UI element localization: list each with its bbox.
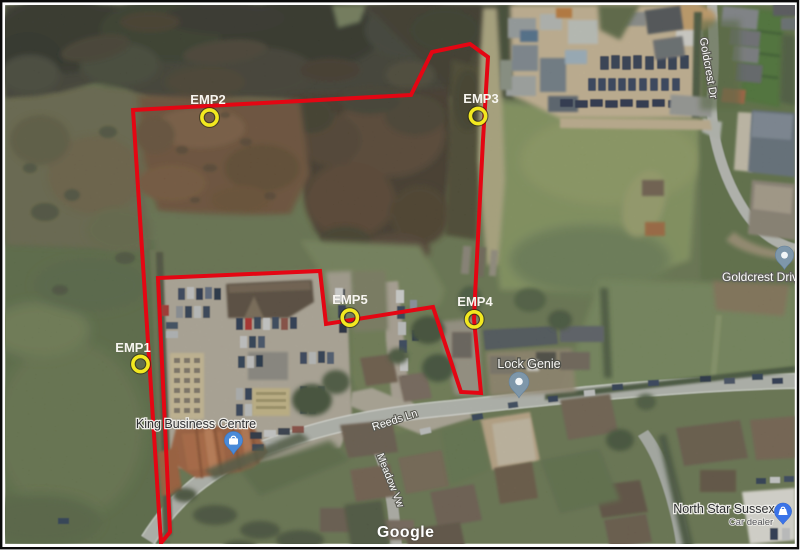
- svg-text:King Business Centre: King Business Centre: [136, 417, 256, 431]
- svg-text:Google: Google: [377, 524, 434, 541]
- svg-text:EMP5: EMP5: [332, 292, 367, 307]
- svg-text:Car dealer: Car dealer: [729, 517, 773, 528]
- svg-text:EMP2: EMP2: [190, 92, 225, 107]
- svg-text:Lock Genie: Lock Genie: [497, 357, 560, 371]
- svg-text:Goldcrest Driv: Goldcrest Driv: [722, 270, 798, 284]
- svg-text:EMP1: EMP1: [115, 340, 150, 355]
- svg-text:EMP4: EMP4: [457, 294, 493, 309]
- svg-text:EMP3: EMP3: [463, 91, 498, 106]
- svg-text:North Star Sussex: North Star Sussex: [673, 502, 775, 516]
